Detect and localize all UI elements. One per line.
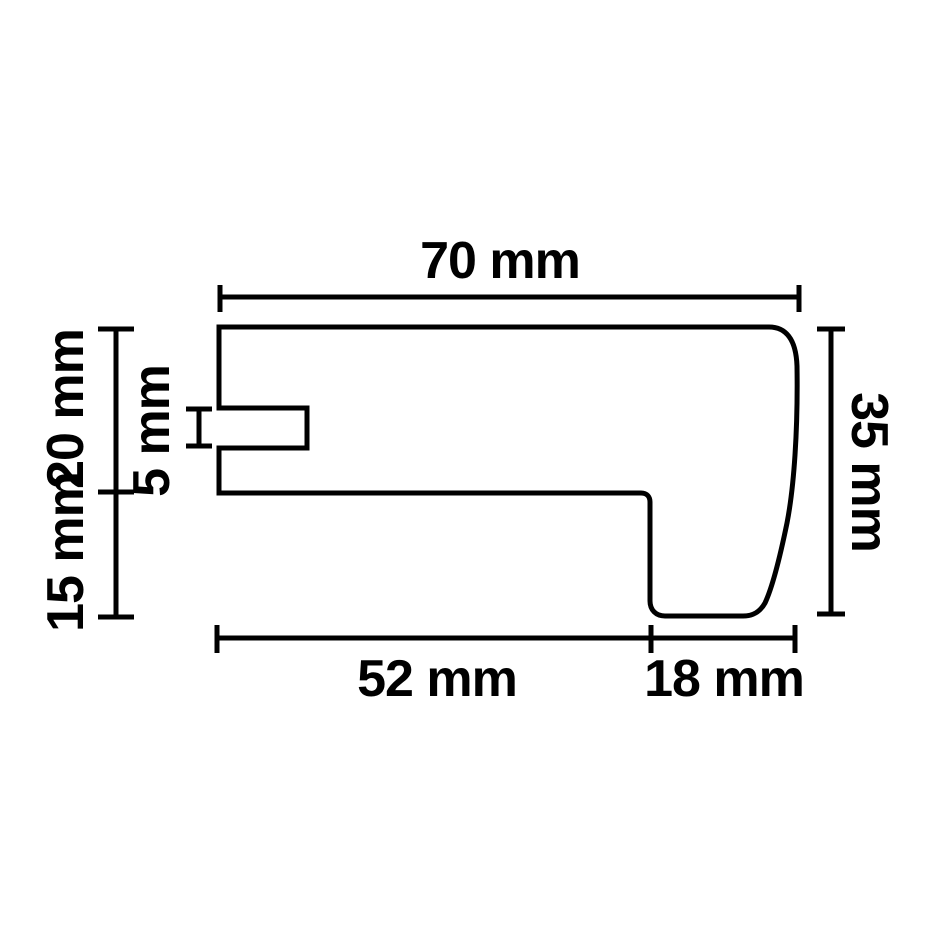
dim-label-left-upper-height: 20 mm <box>40 329 92 489</box>
dim-label-groove-height: 5 mm <box>126 365 178 497</box>
dim-label-bottom-right-width: 18 mm <box>644 653 804 705</box>
dim-label-left-lower-height: 15 mm <box>40 472 92 632</box>
profile-outline <box>219 327 797 616</box>
dim-label-bottom-left-width: 52 mm <box>357 653 517 705</box>
dim-label-top-width: 70 mm <box>420 235 580 287</box>
dim-label-right-height: 35 mm <box>843 392 895 552</box>
diagram-canvas: 70 mm 35 mm 20 mm 15 mm 5 mm 52 mm 18 mm <box>0 0 940 940</box>
dim-line-groove-height <box>186 409 212 446</box>
dim-line-bottom-widths <box>217 625 795 653</box>
